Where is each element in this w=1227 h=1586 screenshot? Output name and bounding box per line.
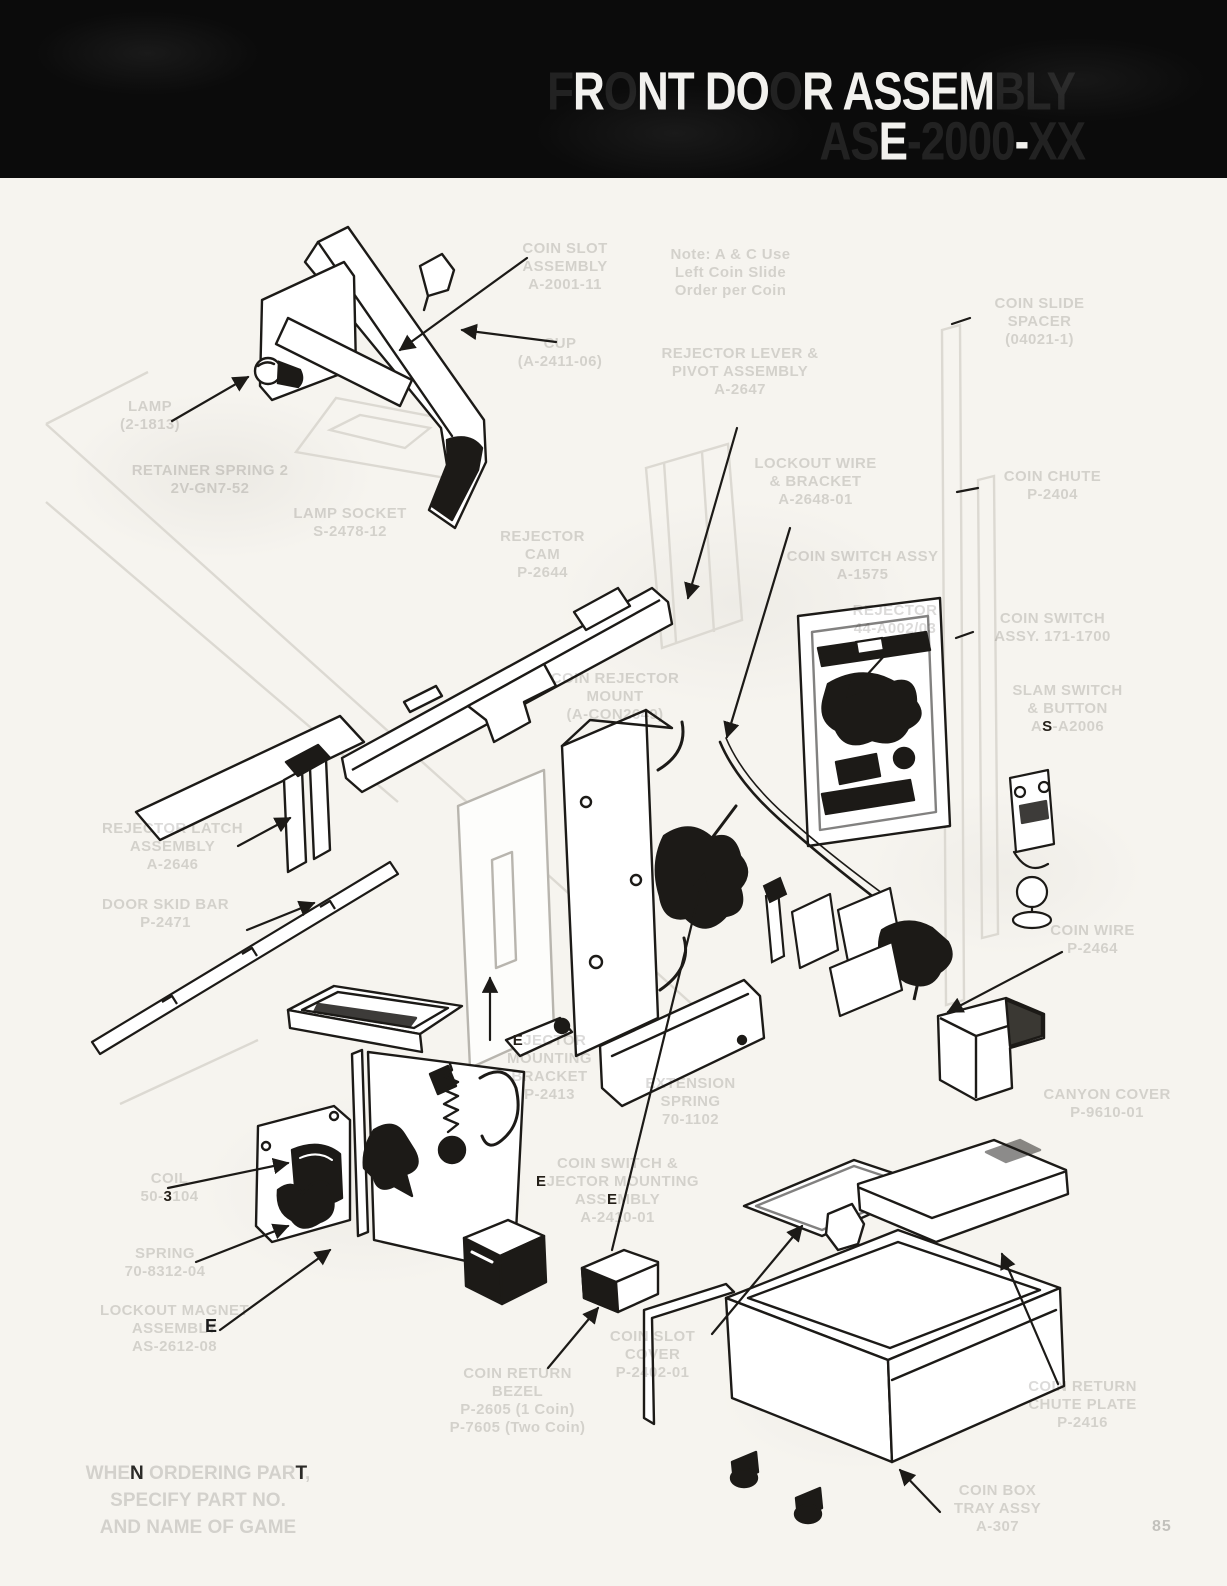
label-line: A-2410-01: [515, 1209, 720, 1227]
label-line: CANYON COVER: [1022, 1086, 1192, 1104]
label-coin-slot-cover: COIN SLOT COVER P-2402-01: [585, 1328, 720, 1382]
coin-return-bezel-part: [582, 1250, 658, 1312]
manual-page: FRONT DOOR ASSEMBLY ASE-2000-XX COIN SLO…: [0, 0, 1227, 1586]
ghost-lamp-socket-inner: [330, 415, 430, 448]
label-line: MOUNTING: [492, 1050, 607, 1068]
label-line: MOUNT: [525, 688, 705, 706]
label-coin-switch-171: COIN SWITCH ASSY. 171-1700: [975, 610, 1130, 646]
label-lamp-socket: LAMP SOCKET S-2478-12: [265, 505, 435, 541]
label-line: CAM: [485, 546, 600, 564]
header-bar: FRONT DOOR ASSEMBLY ASE-2000-XX: [0, 0, 1227, 178]
label-slam-switch: SLAM SWITCH & BUTTON AS-A2006: [990, 682, 1145, 736]
note-line: AND NAME OF GAME: [78, 1514, 318, 1541]
note-line: SPECIFY PART NO.: [78, 1487, 318, 1514]
label-coin-return-plate: COIN RETURN CHUTE PLATE P-2416: [1000, 1378, 1165, 1432]
label-line: & BUTTON: [990, 700, 1145, 718]
label-line: LOCKOUT WIRE: [733, 455, 898, 473]
rejector-latch-part: [284, 745, 330, 872]
label-line: EXTENSION: [628, 1075, 753, 1093]
label-line: COIN CHUTE: [980, 468, 1125, 486]
label-rejector: REJECTOR 44-A002/03: [820, 602, 970, 638]
mech-disc: [439, 1137, 465, 1163]
mech-arm-pivot: [555, 1019, 569, 1033]
label-line: ASSY. 171-1700: [975, 628, 1130, 646]
label-retainer-spring: RETAINER SPRING 2 2V-GN7-52: [115, 462, 305, 498]
label-line: A-1575: [775, 566, 950, 584]
plate-hook-top: [658, 722, 683, 770]
label-line: LOCKOUT MAGNET: [82, 1302, 267, 1320]
label-line: 70-8312-04: [100, 1263, 230, 1281]
label-lockout-wire: LOCKOUT WIRE & BRACKET A-2648-01: [733, 455, 898, 509]
main-plate: [562, 710, 658, 1056]
label-line: ASSEMBLY: [90, 838, 255, 856]
label-line: & BRACKET: [733, 473, 898, 491]
label-line: LAMP SOCKET: [265, 505, 435, 523]
label-coin-return-bezel: COIN RETURN BEZEL P-2605 (1 Coin) P-7605…: [425, 1365, 610, 1437]
label-rejector-latch: REJECTOR LATCH ASSEMBLY A-2646: [90, 820, 255, 874]
label-line: P-2464: [1025, 940, 1160, 958]
label-line: COIN SLIDE: [972, 295, 1107, 313]
canyon-cover-part: [938, 998, 1044, 1100]
label-line: REJECTOR: [820, 602, 970, 620]
label-line: COIN BOX: [925, 1482, 1070, 1500]
label-line: (A-CON2649): [525, 706, 705, 724]
ordering-note: WHEN ORDERING PART, SPECIFY PART NO. AND…: [78, 1460, 318, 1541]
ghost-lever-frame-rib: [664, 452, 714, 642]
label-line: P-2413: [492, 1086, 607, 1104]
switch-lever: [1014, 852, 1048, 868]
label-line: P-2416: [1000, 1414, 1165, 1432]
rejector-window: [856, 638, 884, 654]
page-number: 85: [1152, 1518, 1172, 1536]
label-line: COVER: [585, 1346, 720, 1364]
label-line: A-2001-11: [500, 276, 630, 294]
label-line: AS-A2006: [990, 718, 1145, 736]
ghost-line: [120, 1040, 258, 1104]
label-line: EJECTOR MOUNTING: [515, 1173, 720, 1191]
label-coin-box: COIN BOX TRAY ASSY A-307: [925, 1482, 1070, 1536]
label-coin-switch-ejector-mount: COIN SWITCH & EJECTOR MOUNTING ASSEMBLY …: [515, 1155, 720, 1227]
label-cup: CUP (A-2411-06): [505, 335, 615, 371]
label-line: COIN REJECTOR: [525, 670, 705, 688]
coin-wire-parts: [792, 888, 952, 1016]
label-line: 2V-GN7-52: [115, 480, 305, 498]
label-line: P-2644: [485, 564, 600, 582]
label-line: COIN SLOT: [585, 1328, 720, 1346]
box-foot: [731, 1469, 757, 1487]
latch-channel-2: [310, 759, 330, 859]
label-line: AS-2612-08: [82, 1338, 267, 1356]
label-line: P-7605 (Two Coin): [425, 1419, 610, 1437]
label-line: COIN SWITCH ASSY: [775, 548, 950, 566]
bracket-foot-shade: [432, 437, 482, 520]
label-line: BRACKET: [492, 1068, 607, 1086]
label-line: A-2647: [650, 381, 830, 399]
label-line: 44-A002/03: [820, 620, 970, 638]
label-line: COIN SWITCH &: [515, 1155, 720, 1173]
label-coin-rejector-mount: COIN REJECTOR MOUNT (A-CON2649): [525, 670, 705, 724]
label-line: EJECTOR: [492, 1032, 607, 1050]
label-line: SPRING: [628, 1093, 753, 1111]
wire-bracket: [792, 894, 838, 968]
label-coin-wire: COIN WIRE P-2464: [1025, 922, 1160, 958]
note-line: WHEN ORDERING PART,: [78, 1460, 318, 1487]
label-line: P-2471: [78, 914, 253, 932]
label-line: COIL: [112, 1170, 227, 1188]
label-line: 50-3104: [112, 1188, 227, 1206]
label-line: REJECTOR LEVER &: [650, 345, 830, 363]
label-line: ASSEMBLY: [500, 258, 630, 276]
label-line: COIN RETURN: [425, 1365, 610, 1383]
wire-lower-plate: [830, 942, 902, 1016]
label-line: 70-1102: [628, 1111, 753, 1129]
label-rejector-lever: REJECTOR LEVER & PIVOT ASSEMBLY A-2647: [650, 345, 830, 399]
label-line: REJECTOR LATCH: [90, 820, 255, 838]
label-line: SPRING: [100, 1245, 230, 1263]
label-line: COIN WIRE: [1025, 922, 1160, 940]
label-line: PIVOT ASSEMBLY: [650, 363, 830, 381]
label-coin-slide-spacer: COIN SLIDE SPACER (04021-1): [972, 295, 1107, 349]
label-lockout-magnet: LOCKOUT MAGNET ASSEMBLY AS-2612-08: [82, 1302, 267, 1356]
rejector-disc: [894, 748, 914, 768]
switch-contacts: [1020, 801, 1048, 823]
leader-tick: [952, 318, 978, 638]
label-line: CUP: [505, 335, 615, 353]
rejector-mid-mech: [823, 673, 921, 744]
label-lamp: LAMP (2-1813): [100, 398, 200, 434]
bottom-bracket-rivet: [738, 1036, 746, 1044]
label-canyon-cover: CANYON COVER P-9610-01: [1022, 1086, 1192, 1122]
label-coin-slot-assembly: COIN SLOT ASSEMBLY A-2001-11: [500, 240, 630, 294]
label-line: ASSEMBLY: [515, 1191, 720, 1209]
label-line: SPACER: [972, 313, 1107, 331]
slam-button: [1017, 877, 1047, 907]
label-line: SLAM SWITCH: [990, 682, 1145, 700]
label-line: CHUTE PLATE: [1000, 1396, 1165, 1414]
label-line: P-9610-01: [1022, 1104, 1192, 1122]
label-line: Note: A & C Use: [648, 246, 813, 264]
label-extension-spring: EXTENSION SPRING 70-1102: [628, 1075, 753, 1129]
label-line: COIN RETURN: [1000, 1378, 1165, 1396]
label-line: LAMP: [100, 398, 200, 416]
label-line: REJECTOR: [485, 528, 600, 546]
slam-switch-part: [1010, 770, 1054, 928]
label-line: S-2478-12: [265, 523, 435, 541]
label-note-callout: Note: A & C Use Left Coin Slide Order pe…: [648, 246, 813, 300]
rejector-mech-spur: [712, 806, 736, 838]
label-line: P-2605 (1 Coin): [425, 1401, 610, 1419]
label-coil: COIL 50-3104: [112, 1170, 227, 1206]
label-line: P-2404: [980, 486, 1125, 504]
label-line: A-2646: [90, 856, 255, 874]
side-plate-light: [458, 770, 554, 1068]
bracket-clip: [420, 254, 454, 310]
label-line: P-2402-01: [585, 1364, 720, 1382]
page-title-line2: ASE-2000-XX: [820, 112, 1085, 173]
box-foot: [795, 1505, 821, 1523]
label-line: (A-2411-06): [505, 353, 615, 371]
label-line: A-2648-01: [733, 491, 898, 509]
rejector-mech-blob: [656, 827, 747, 927]
label-spring: SPRING 70-8312-04: [100, 1245, 230, 1281]
label-line: TRAY ASSY: [925, 1500, 1070, 1518]
mech-plate-edge: [352, 1050, 368, 1236]
label-coin-switch-assy: COIN SWITCH ASSY A-1575: [775, 548, 950, 584]
label-line: A-307: [925, 1518, 1070, 1536]
label-line: (04021-1): [972, 331, 1107, 349]
ghost-coin-slide: [942, 325, 964, 1005]
label-ejector-bracket: EJECTOR MOUNTING BRACKET P-2413: [492, 1032, 607, 1104]
label-line: BEZEL: [425, 1383, 610, 1401]
label-line: Order per Coin: [648, 282, 813, 300]
stray-letter-e: E: [205, 1316, 217, 1337]
label-line: COIN SLOT: [500, 240, 630, 258]
label-line: DOOR SKID BAR: [78, 896, 253, 914]
label-line: Left Coin Slide: [648, 264, 813, 282]
label-line: COIN SWITCH: [975, 610, 1130, 628]
label-door-skid-bar: DOOR SKID BAR P-2471: [78, 896, 253, 932]
latch-channel-1: [284, 770, 306, 872]
chute-plate: [858, 1140, 1068, 1242]
label-line: (2-1813): [100, 416, 200, 434]
label-coin-chute: COIN CHUTE P-2404: [980, 468, 1125, 504]
label-line: ASSEMBLY: [82, 1320, 267, 1338]
label-rejector-cam: REJECTOR CAM P-2644: [485, 528, 600, 582]
label-line: RETAINER SPRING 2: [115, 462, 305, 480]
